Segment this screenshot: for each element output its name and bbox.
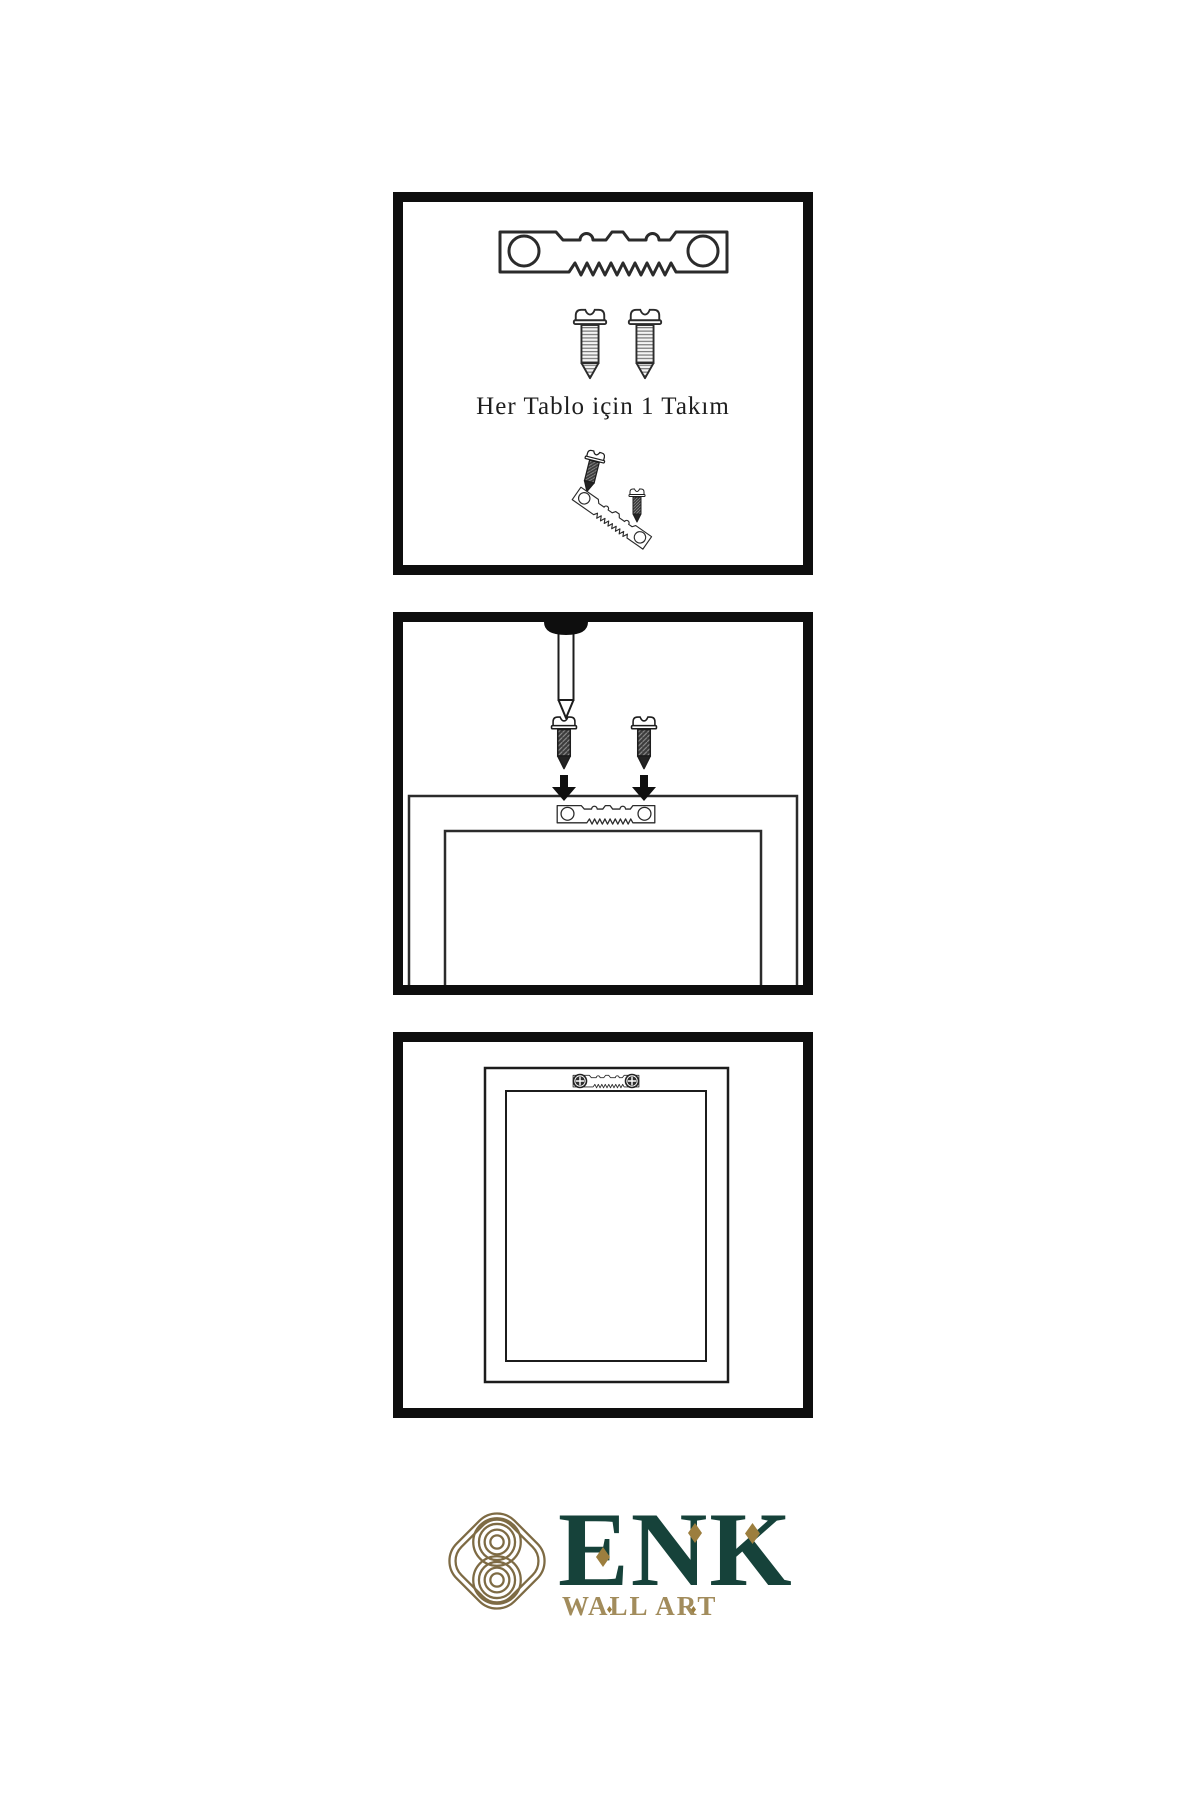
picture-frame [485, 1068, 728, 1382]
artwork-area [506, 1091, 706, 1361]
panel-install [393, 612, 813, 995]
sawtooth-hanger-icon [500, 232, 727, 275]
frame-back [409, 796, 797, 985]
page-canvas: { "canvas": { "width": 1200, "height": 1… [0, 0, 1200, 1800]
dark-screw-icon [632, 717, 657, 768]
phillips-screw-icon [626, 1075, 639, 1088]
sawtooth-hanger-icon [557, 806, 655, 824]
panel-install-drawing [403, 622, 803, 985]
panel-hang-drawing [403, 1042, 803, 1408]
knot-emblem-icon [440, 1497, 554, 1625]
phillips-screw-icon [574, 1075, 587, 1088]
screw-icon [574, 310, 606, 378]
panel-kit-drawing [403, 202, 803, 565]
frame-inner-outline [445, 831, 761, 985]
kit-caption: Her Tablo için 1 Takım [403, 392, 803, 422]
dark-screw-icon [552, 717, 577, 768]
panel-hang [393, 1032, 813, 1418]
dark-screw-icon [629, 489, 645, 522]
nail-icon [544, 622, 588, 718]
brand-tagline: WALL ART [562, 1593, 717, 1620]
panel-kit: Her Tablo için 1 Takım [393, 192, 813, 575]
screw-icon [629, 310, 661, 378]
brand-name: ENK [558, 1497, 794, 1603]
